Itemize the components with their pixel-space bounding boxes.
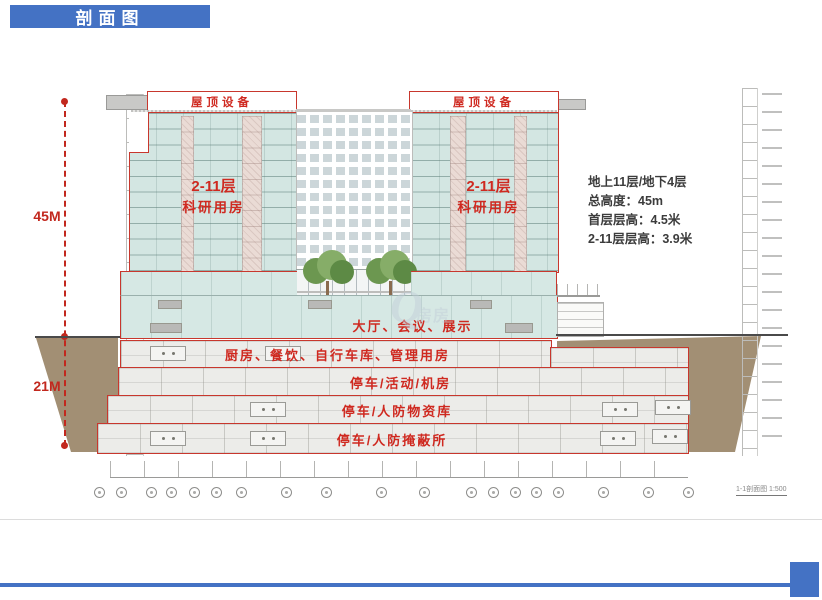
grid-bubble [166, 487, 177, 498]
right-level-ladder [742, 88, 758, 456]
slide: 剖面图 45M 21M 屋顶设备 屋顶设备 [0, 0, 822, 600]
tower-left-outline [129, 152, 130, 271]
watermark: Q 房房 [382, 280, 482, 344]
right-level-annotations [762, 93, 782, 453]
roof-equipment-label-right: 屋顶设备 [453, 94, 515, 110]
roof-bulkhead-right [558, 99, 586, 110]
grid-bubble [211, 487, 222, 498]
duct [158, 300, 182, 309]
tower-right-program-label: 2-11层 科研用房 [431, 176, 546, 218]
footer-accent-line [0, 583, 790, 587]
stat-floors: 地上11层/地下4层 [588, 176, 778, 188]
separator-line [0, 519, 822, 520]
tower-left-program-label: 2-11层 科研用房 [156, 176, 271, 218]
grid-bubble [321, 487, 332, 498]
grid-bubble [488, 487, 499, 498]
drawing-scale-note: 1-1剖面图 1:500 [736, 484, 787, 496]
dimension-dot-top [61, 98, 68, 105]
background-facade [296, 112, 413, 269]
footer-accent-square [790, 562, 819, 597]
duct [150, 323, 182, 333]
stat-first-floor-height: 首层层高：4.5米 [588, 214, 778, 226]
basement3-label: 停车/人防物资库 [107, 401, 687, 420]
height-dimension-line [64, 101, 66, 446]
roof-bulkhead-left [106, 95, 150, 110]
ground-line-left [35, 336, 120, 338]
dimension-line [110, 477, 688, 478]
watermark-text: 房房 [416, 302, 450, 326]
tower-left-setback [129, 112, 149, 153]
basement4-label: 停车/人防掩蔽所 [97, 430, 687, 449]
service-yard [557, 302, 604, 337]
grid-bubble [376, 487, 387, 498]
grid-bubble [94, 487, 105, 498]
stat-total-height: 总高度：45m [588, 195, 778, 207]
grid-bubble [553, 487, 564, 498]
grid-bubble [116, 487, 127, 498]
grid-bubble [643, 487, 654, 498]
grid-bubble [281, 487, 292, 498]
side-canopy [557, 284, 600, 297]
grid-bubble [189, 487, 200, 498]
dimension-ticks [110, 461, 688, 477]
duct [308, 300, 332, 309]
stat-typical-floor-height: 2-11层层高：3.9米 [588, 233, 778, 245]
roof-equipment-label-left: 屋顶设备 [191, 94, 253, 110]
ground-line-right [556, 334, 788, 336]
podium-left [120, 271, 297, 296]
grid-bubble [598, 487, 609, 498]
grid-bubble [683, 487, 694, 498]
below-ground-height-label: 21M [28, 378, 66, 394]
tree [303, 248, 355, 297]
basement1-label: 厨房、餐饮、自行车库、管理用房 [125, 345, 550, 364]
basement2-label: 停车/活动/机房 [118, 373, 683, 392]
building-stats-panel: 地上11层/地下4层 总高度：45m 首层层高：4.5米 2-11层层高：3.9… [588, 176, 778, 252]
basement1-right-section [550, 347, 689, 369]
grid-bubble [146, 487, 157, 498]
dimension-dot-bottom [61, 442, 68, 449]
grid-bubble [236, 487, 247, 498]
grid-bubble [531, 487, 542, 498]
above-ground-height-label: 45M [28, 208, 66, 224]
grid-bubble [466, 487, 477, 498]
grid-bubble [419, 487, 430, 498]
grid-bubble [510, 487, 521, 498]
